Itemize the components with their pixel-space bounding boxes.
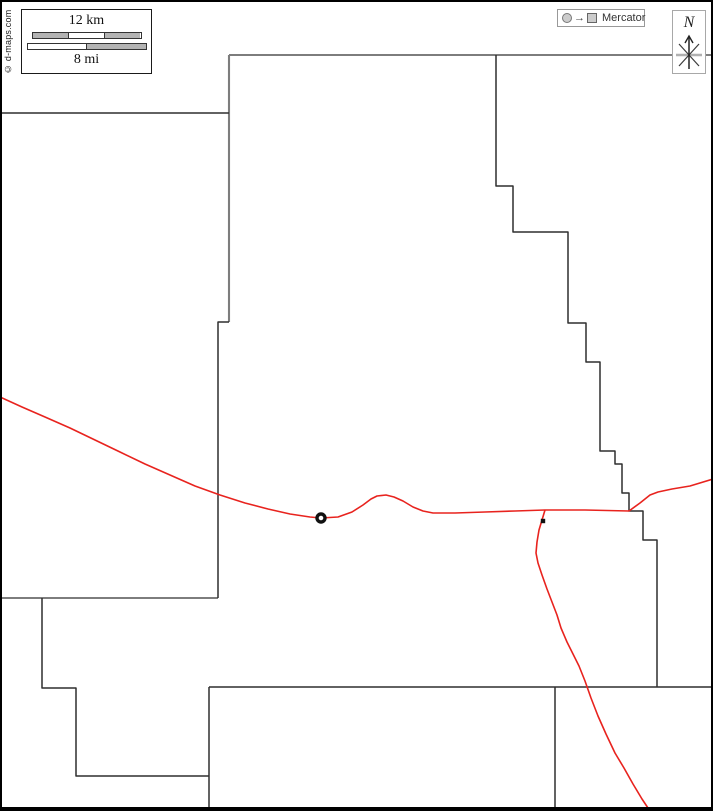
road-line: [536, 510, 648, 808]
map-frame-left: [0, 0, 2, 811]
flat-map-square-icon: [587, 13, 597, 23]
county-boundary-line: [496, 55, 657, 687]
compass-box: N: [672, 10, 706, 74]
scale-mi-bar: [27, 43, 147, 50]
junction-dot-marker: [541, 519, 545, 523]
sphere-circle-icon: [562, 13, 572, 23]
scale-box: 12 km 8 mi: [21, 9, 152, 74]
scale-bar-segment: [104, 33, 140, 38]
map-page: © d-maps.com 12 km 8 mi → Mercator N: [0, 0, 713, 811]
map-frame-top: [0, 0, 713, 2]
town-ring-marker: [317, 514, 325, 522]
scale-bar-segment: [86, 44, 146, 49]
projection-badge: → Mercator: [557, 9, 645, 27]
scale-mi-label: 8 mi: [74, 53, 99, 67]
county-boundary-line: [42, 598, 209, 776]
scale-km-label: 12 km: [69, 14, 104, 28]
road-line: [0, 397, 629, 518]
scale-km-bar: [32, 32, 142, 39]
compass-north-label: N: [684, 15, 695, 31]
scale-bar-segment: [68, 33, 104, 38]
scale-bar-segment: [28, 44, 87, 49]
arrow-right-icon: →: [574, 13, 585, 24]
scale-bar-segment: [33, 33, 68, 38]
map-frame-bottom: [0, 807, 713, 811]
projection-label: Mercator: [602, 12, 645, 24]
county-boundary-line: [218, 322, 229, 598]
road-line: [629, 479, 713, 511]
compass-star-icon: [672, 31, 706, 73]
copyright-text: © d-maps.com: [1, 8, 15, 76]
map-canvas: [0, 0, 713, 811]
